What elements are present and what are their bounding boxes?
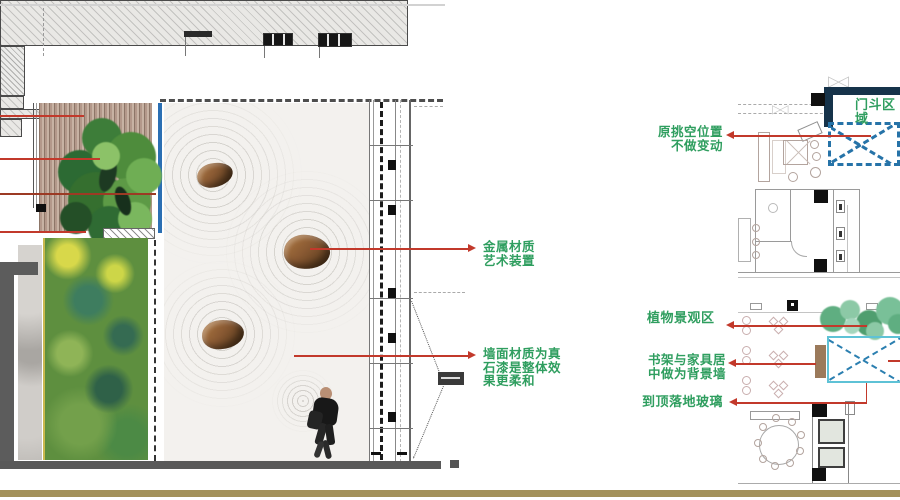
annotation-metal-art: 金属材质 艺术装置 xyxy=(483,240,535,267)
dining-chair xyxy=(759,455,767,463)
column-block xyxy=(812,403,827,417)
wall-line xyxy=(859,189,860,273)
seat xyxy=(742,316,751,325)
mullion-crossbar xyxy=(369,298,413,299)
leader-arrow xyxy=(729,398,737,406)
wall-line xyxy=(848,403,849,483)
leader-line xyxy=(736,363,816,365)
navy-wall-vertical xyxy=(824,87,833,127)
dining-chair xyxy=(788,418,796,426)
stool xyxy=(810,140,819,149)
leader-line xyxy=(888,360,900,362)
fixture xyxy=(836,250,845,262)
tag-leader-line xyxy=(319,47,320,58)
mullion-column xyxy=(369,100,413,462)
dining-chair xyxy=(796,447,804,455)
mullion-foot xyxy=(371,452,381,455)
concrete-wall-notch xyxy=(0,96,24,109)
seat xyxy=(742,376,751,385)
mullion-crossbar xyxy=(369,145,413,146)
moss-garden xyxy=(43,238,148,460)
leader-line xyxy=(0,115,84,117)
mullion-line xyxy=(409,100,411,462)
sand-left-dashed-line xyxy=(154,240,156,461)
dining-chair xyxy=(759,423,767,431)
annotation-plant-zone: 植物景观区 xyxy=(647,312,715,326)
seat xyxy=(774,389,784,399)
dining-chair xyxy=(771,462,779,470)
leader-line xyxy=(0,231,86,233)
desk-chair xyxy=(752,224,760,232)
wall-line xyxy=(755,241,791,242)
dining-chair xyxy=(786,459,794,467)
centerline xyxy=(43,8,44,56)
desk-chair xyxy=(752,238,760,246)
dining-chair xyxy=(754,439,762,447)
table-square xyxy=(783,140,808,165)
mullion-crossbar xyxy=(369,363,413,364)
top-hairline xyxy=(0,4,445,6)
tag-leader-line xyxy=(264,46,265,58)
column-chip xyxy=(36,204,46,212)
metal-beam-step xyxy=(0,119,22,137)
void-x-diagonal xyxy=(831,122,900,164)
plant-foliage xyxy=(60,202,92,234)
mullion-block xyxy=(388,160,396,170)
leader-line xyxy=(866,383,868,403)
plant-foliage xyxy=(126,158,162,194)
tag-leader-line xyxy=(185,37,186,56)
void-x-diagonal xyxy=(829,126,899,166)
person-figure xyxy=(306,385,350,461)
leader-line xyxy=(0,193,156,195)
detail-callout-line xyxy=(411,301,443,381)
seat xyxy=(779,381,789,391)
stool xyxy=(812,152,821,161)
door-arc xyxy=(791,241,807,257)
leader-arrow xyxy=(726,321,734,329)
column-block xyxy=(814,259,827,272)
dimension-tag xyxy=(263,33,293,46)
mullion-foot xyxy=(397,452,407,455)
concrete-pier-left xyxy=(0,46,25,96)
mullion-dashed-line xyxy=(380,102,383,460)
symbol-dot xyxy=(791,303,794,306)
wall-line xyxy=(755,189,860,190)
dark-wall-horizontal xyxy=(0,262,38,275)
leader-arrow xyxy=(726,131,734,139)
mullion-block xyxy=(388,205,396,215)
leader-line xyxy=(0,158,100,160)
leader-line xyxy=(734,135,871,137)
column-block xyxy=(814,190,828,203)
dimension-tag xyxy=(184,31,212,37)
desk-outline xyxy=(738,218,751,262)
desk-chair xyxy=(752,251,760,259)
design-presentation-slide: 金属材质 艺术装置 墙面材质为真 石漆是整体效 果更柔和 门斗区域 原挑空位置 … xyxy=(0,0,900,500)
mullion-line xyxy=(395,100,396,462)
column-block xyxy=(812,468,826,481)
dashdot-line xyxy=(414,292,465,293)
mullion-line xyxy=(373,100,374,462)
plant-zone-blob xyxy=(888,314,900,334)
annotation-bookshelf: 书架与家具居 中做为背景墙 xyxy=(632,353,726,380)
mullion-line xyxy=(369,100,370,462)
pot-plant xyxy=(768,203,778,213)
plant-foliage xyxy=(92,142,120,170)
wall-line xyxy=(790,189,791,241)
seat xyxy=(742,346,751,355)
leader-arrow xyxy=(468,351,476,359)
annotation-original-void: 原挑空位置 不做变动 xyxy=(653,125,723,153)
dark-wall-vertical xyxy=(0,275,14,462)
detail-callout-line xyxy=(413,386,444,458)
navy-wall-horizontal xyxy=(824,87,900,95)
wall-tick xyxy=(750,303,762,310)
wall-chip xyxy=(450,460,459,468)
dimension-tag xyxy=(318,33,352,47)
wall-line xyxy=(833,189,834,272)
void-area-dashed xyxy=(828,122,900,166)
fixture xyxy=(836,227,845,240)
dining-chair xyxy=(772,414,780,422)
leader-arrow xyxy=(728,359,736,367)
wall-line xyxy=(738,312,833,313)
annotation-wall-material: 墙面材质为真 石漆是整体效 果更柔和 xyxy=(483,347,561,388)
mullion-block xyxy=(388,288,396,298)
dashdot-line xyxy=(414,106,443,107)
seat xyxy=(779,351,789,361)
mullion-crossbar xyxy=(369,428,413,429)
wall-line xyxy=(738,277,900,278)
column-block xyxy=(811,93,825,106)
storage-room xyxy=(818,447,845,468)
tilted-furniture xyxy=(797,121,822,142)
mullion-crossbar xyxy=(369,200,413,201)
seat xyxy=(742,326,751,335)
footer-accent-bar xyxy=(0,490,900,497)
floor-line xyxy=(738,483,900,484)
stool xyxy=(810,167,821,178)
wall-line xyxy=(738,272,900,273)
dining-chair xyxy=(797,431,805,439)
detail-callout-tag xyxy=(438,372,464,385)
storage-room xyxy=(818,419,845,444)
leader-arrow xyxy=(468,244,476,252)
mullion-block xyxy=(388,412,396,422)
leader-line xyxy=(737,402,867,404)
annotation-vestibule: 门斗区域 xyxy=(855,99,900,126)
ceiling-symbol xyxy=(772,102,786,116)
seat xyxy=(742,386,751,395)
symbol-block xyxy=(787,300,798,311)
tag-glyph xyxy=(441,377,460,379)
mullion-block xyxy=(388,333,396,343)
leader-line xyxy=(310,248,468,250)
mullion-centerline xyxy=(400,100,401,462)
stone-strip xyxy=(18,245,42,460)
bottom-wall-band xyxy=(0,461,441,469)
sofa-outline xyxy=(758,132,770,182)
annotation-glass-wall: 到顶落地玻璃 xyxy=(642,396,723,410)
wall-line xyxy=(847,205,848,272)
leader-line xyxy=(294,355,468,357)
stool xyxy=(788,172,798,182)
fixture xyxy=(836,200,845,213)
leader-line xyxy=(734,325,867,327)
bookshelf-wall xyxy=(815,345,826,378)
